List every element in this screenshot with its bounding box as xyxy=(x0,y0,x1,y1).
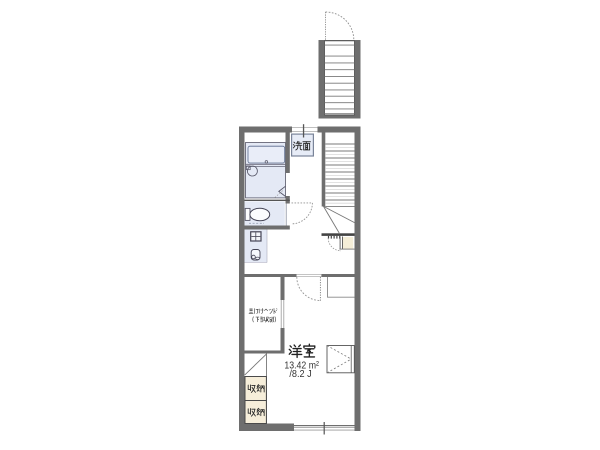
svg-text:/8.2 J: /8.2 J xyxy=(289,369,311,380)
